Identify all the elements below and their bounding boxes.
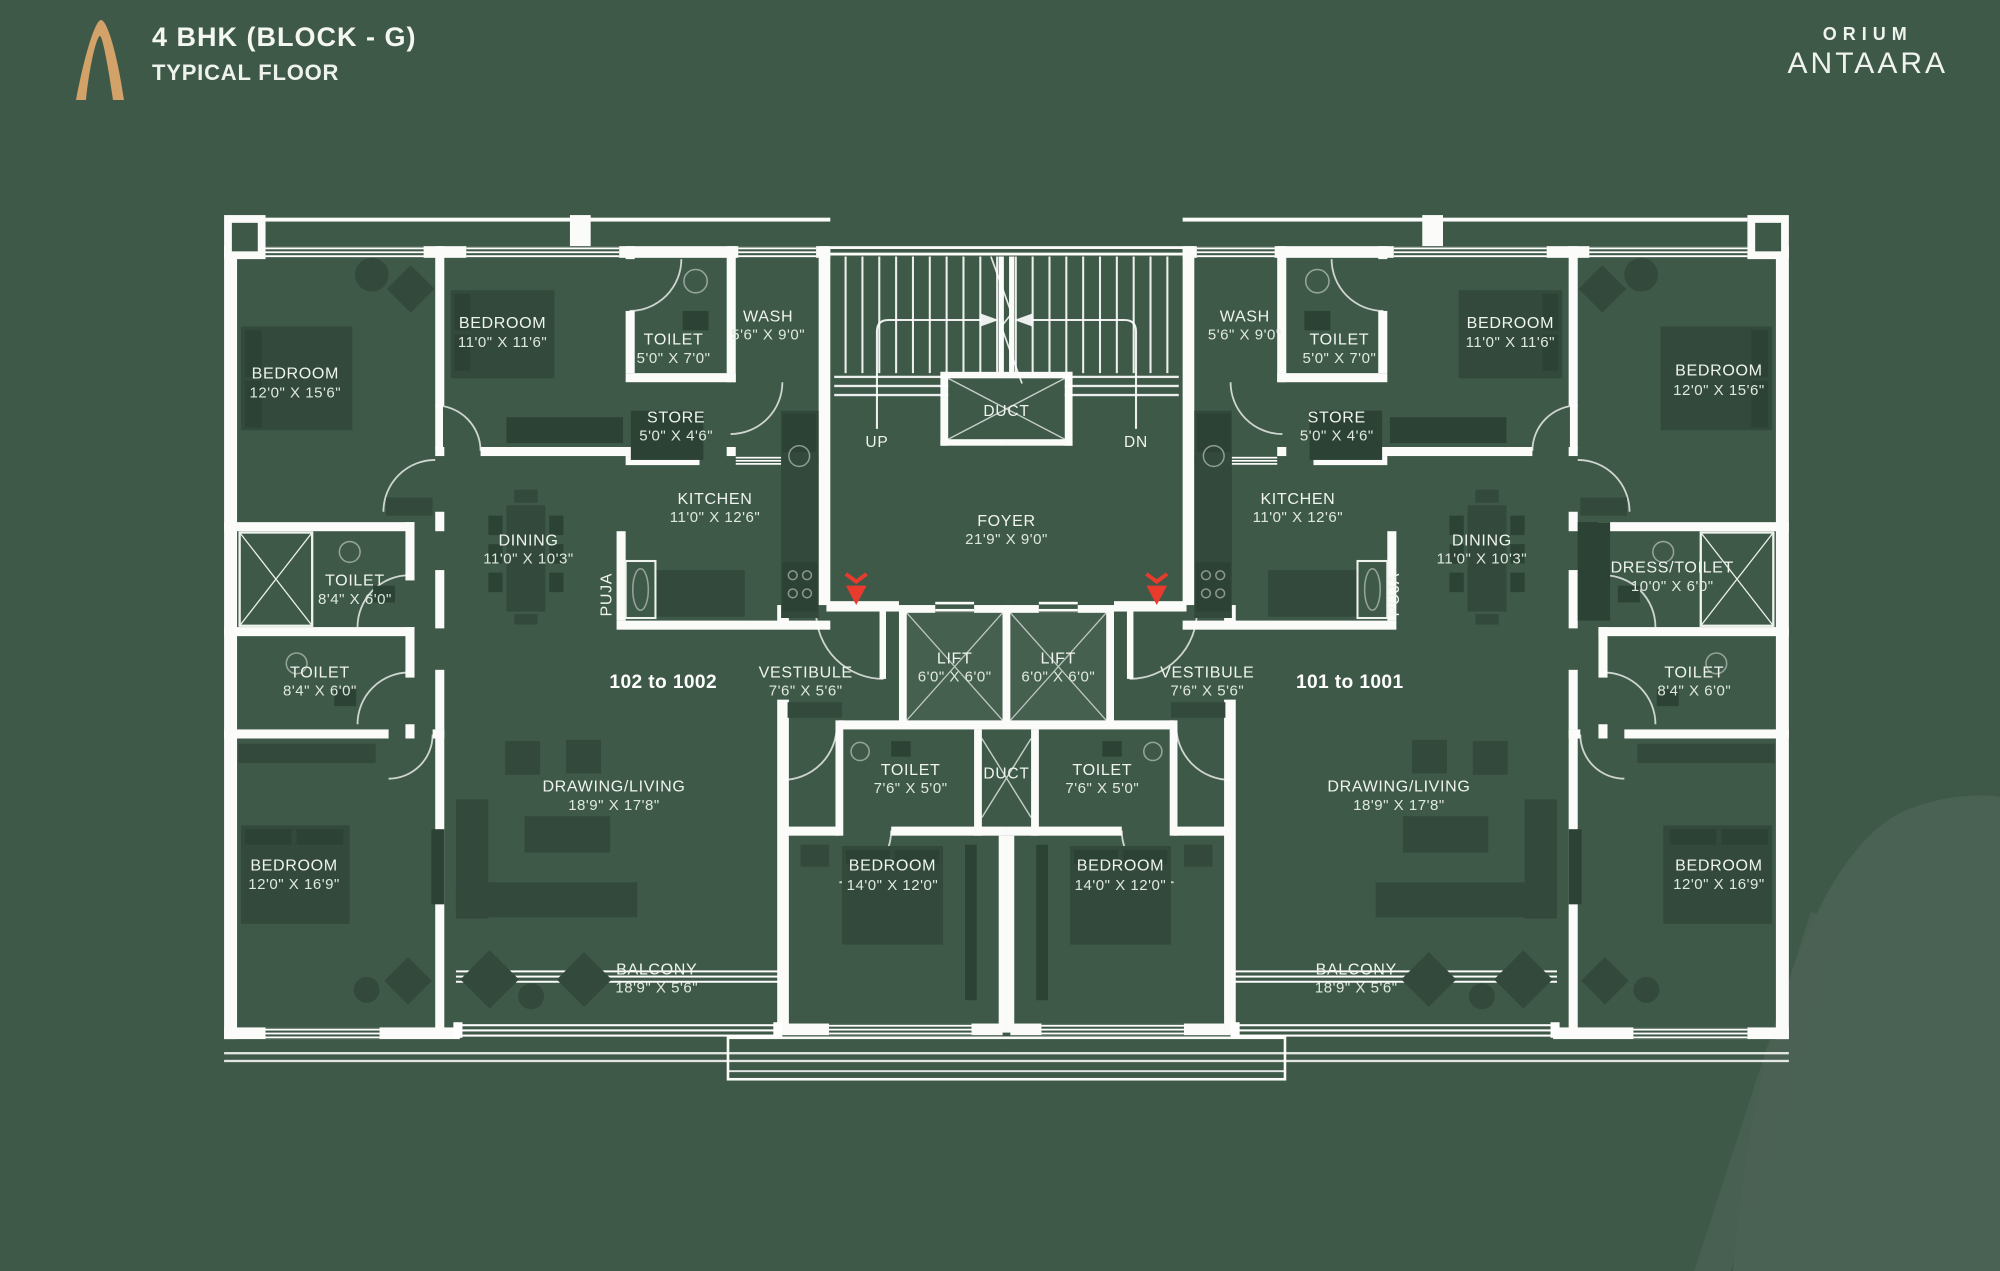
- label-vestibule-right-name: VESTIBULE: [1160, 664, 1254, 682]
- unit-structure: [224, 215, 1010, 1062]
- label-store-left-dims: 5'0" X 4'6": [639, 428, 713, 445]
- label-store-left-name: STORE: [647, 408, 705, 426]
- label-duct-top: DUCT: [983, 403, 1029, 420]
- label-toilet5-right-dims: 5'0" X 7'0": [1302, 350, 1376, 367]
- label-up: UP: [865, 434, 888, 451]
- label-toilet84u-left-dims: 8'4" X 6'0": [318, 591, 392, 608]
- label-dining-right-dims: 11'0" X 10'3": [1437, 551, 1527, 568]
- label-balcony-left-dims: 18'9" X 5'6": [615, 979, 698, 996]
- label-puja-right: PUJA: [1385, 573, 1403, 617]
- label-toilet76-left-name: TOILET: [881, 761, 941, 779]
- label-kitchen-left-dims: 11'0" X 12'6": [670, 509, 760, 526]
- label-balcony-right-dims: 18'9" X 5'6": [1315, 979, 1398, 996]
- label-toilet5-left-dims: 5'0" X 7'0": [637, 350, 711, 367]
- label-toilet76-right-name: TOILET: [1072, 761, 1132, 779]
- label-dress-toilet-name: DRESS/TOILET: [1611, 559, 1734, 577]
- label-lift2-name: LIFT: [1041, 649, 1077, 667]
- arch-logo-icon: [74, 14, 126, 102]
- label-bedroom14-left-name: BEDROOM: [849, 857, 936, 875]
- label-bedroom14-left-dims: 14'0" X 12'0": [847, 877, 939, 894]
- label-dress-toilet-dims: 10'0" X 6'0": [1631, 578, 1714, 595]
- floor-plan-page: BEDROOM 12'0" X 15'6" BEDROOM 11'0" X 11…: [0, 0, 2000, 1271]
- label-puja-left: PUJA: [597, 573, 615, 617]
- label-vestibule-right-dims: 7'6" X 5'6": [1170, 683, 1244, 700]
- label-bedroom11-left-name: BEDROOM: [459, 314, 546, 332]
- label-unit-right: 101 to 1001: [1296, 672, 1404, 693]
- label-toilet5-right-name: TOILET: [1309, 331, 1369, 349]
- label-drawing-left-dims: 18'9" X 17'8": [568, 797, 660, 814]
- label-lift2-dims: 6'0" X 6'0": [1021, 668, 1095, 685]
- label-lift1-name: LIFT: [937, 649, 973, 667]
- label-bedroom15-right-dims: 12'0" X 15'6": [1673, 382, 1765, 399]
- label-bedroom14-right-name: BEDROOM: [1077, 857, 1164, 875]
- label-duct-low: DUCT: [983, 766, 1029, 783]
- plan-title: 4 BHK (BLOCK - G): [152, 22, 416, 53]
- entry-arrow: [846, 574, 867, 605]
- label-bedroom169-right-name: BEDROOM: [1675, 857, 1762, 875]
- label-toilet84l-left-dims: 8'4" X 6'0": [283, 683, 357, 700]
- label-dining-right-name: DINING: [1452, 531, 1512, 549]
- label-wash-left-name: WASH: [743, 307, 793, 325]
- floor-plan: BEDROOM 12'0" X 15'6" BEDROOM 11'0" X 11…: [0, 0, 2000, 1271]
- label-store-right-dims: 5'0" X 4'6": [1300, 428, 1374, 445]
- label-toilet84u-left-name: TOILET: [325, 572, 385, 590]
- label-wash-left-dims: 5'6" X 9'0": [731, 326, 805, 343]
- label-bedroom169-left-dims: 12'0" X 16'9": [248, 876, 340, 893]
- label-dining-left-name: DINING: [498, 531, 558, 549]
- brand-block: ORIUM ANTAARA: [1788, 24, 1948, 81]
- label-bedroom169-right-dims: 12'0" X 16'9": [1673, 876, 1765, 893]
- label-lift1-dims: 6'0" X 6'0": [918, 668, 992, 685]
- label-dn: DN: [1124, 434, 1148, 451]
- staircase: [834, 257, 999, 429]
- label-toilet76-right-dims: 7'6" X 5'0": [1065, 780, 1139, 797]
- label-bedroom11-left-dims: 11'0" X 11'6": [458, 334, 547, 351]
- duct-shaft: [240, 532, 313, 625]
- label-foyer-dims: 21'9" X 9'0": [965, 531, 1048, 548]
- label-kitchen-right-name: KITCHEN: [1260, 490, 1335, 508]
- label-kitchen-left-name: KITCHEN: [678, 490, 753, 508]
- label-vestibule-left-dims: 7'6" X 5'6": [769, 683, 843, 700]
- label-drawing-right-dims: 18'9" X 17'8": [1353, 797, 1445, 814]
- label-bedroom15-right-name: BEDROOM: [1675, 362, 1762, 380]
- label-unit-left: 102 to 1002: [609, 672, 717, 693]
- plan-subtitle: TYPICAL FLOOR: [152, 60, 416, 86]
- label-toilet84l-left-name: TOILET: [290, 664, 350, 682]
- label-toilet76-left-dims: 7'6" X 5'0": [874, 780, 948, 797]
- label-kitchen-right-dims: 11'0" X 12'6": [1253, 509, 1343, 526]
- label-vestibule-left-name: VESTIBULE: [759, 664, 853, 682]
- label-bedroom169-left-name: BEDROOM: [250, 857, 337, 875]
- label-toilet84-right-dims: 8'4" X 6'0": [1657, 683, 1731, 700]
- label-wash-right-dims: 5'6" X 9'0": [1208, 326, 1282, 343]
- label-foyer-name: FOYER: [977, 512, 1036, 530]
- label-store-right-name: STORE: [1308, 408, 1366, 426]
- label-bedroom11-right-dims: 11'0" X 11'6": [1466, 334, 1555, 351]
- brand-logotype: ANTAARA: [1788, 47, 1948, 81]
- label-balcony-right-name: BALCONY: [1316, 960, 1397, 978]
- label-wash-right-name: WASH: [1220, 307, 1270, 325]
- label-dining-left-dims: 11'0" X 10'3": [483, 551, 573, 568]
- label-drawing-left-name: DRAWING/LIVING: [542, 778, 685, 796]
- label-toilet5-left-name: TOILET: [644, 331, 704, 349]
- label-bedroom15-left-name: BEDROOM: [252, 364, 339, 382]
- label-balcony-left-name: BALCONY: [616, 960, 697, 978]
- label-bedroom11-right-name: BEDROOM: [1467, 314, 1554, 332]
- label-toilet84-right-name: TOILET: [1664, 664, 1724, 682]
- label-bedroom15-left-dims: 12'0" X 15'6": [250, 385, 342, 402]
- brand-name: ORIUM: [1788, 24, 1948, 45]
- label-bedroom14-right-dims: 14'0" X 12'0": [1075, 877, 1167, 894]
- label-drawing-right-name: DRAWING/LIVING: [1327, 778, 1470, 796]
- page-title-block: 4 BHK (BLOCK - G) TYPICAL FLOOR: [152, 22, 416, 86]
